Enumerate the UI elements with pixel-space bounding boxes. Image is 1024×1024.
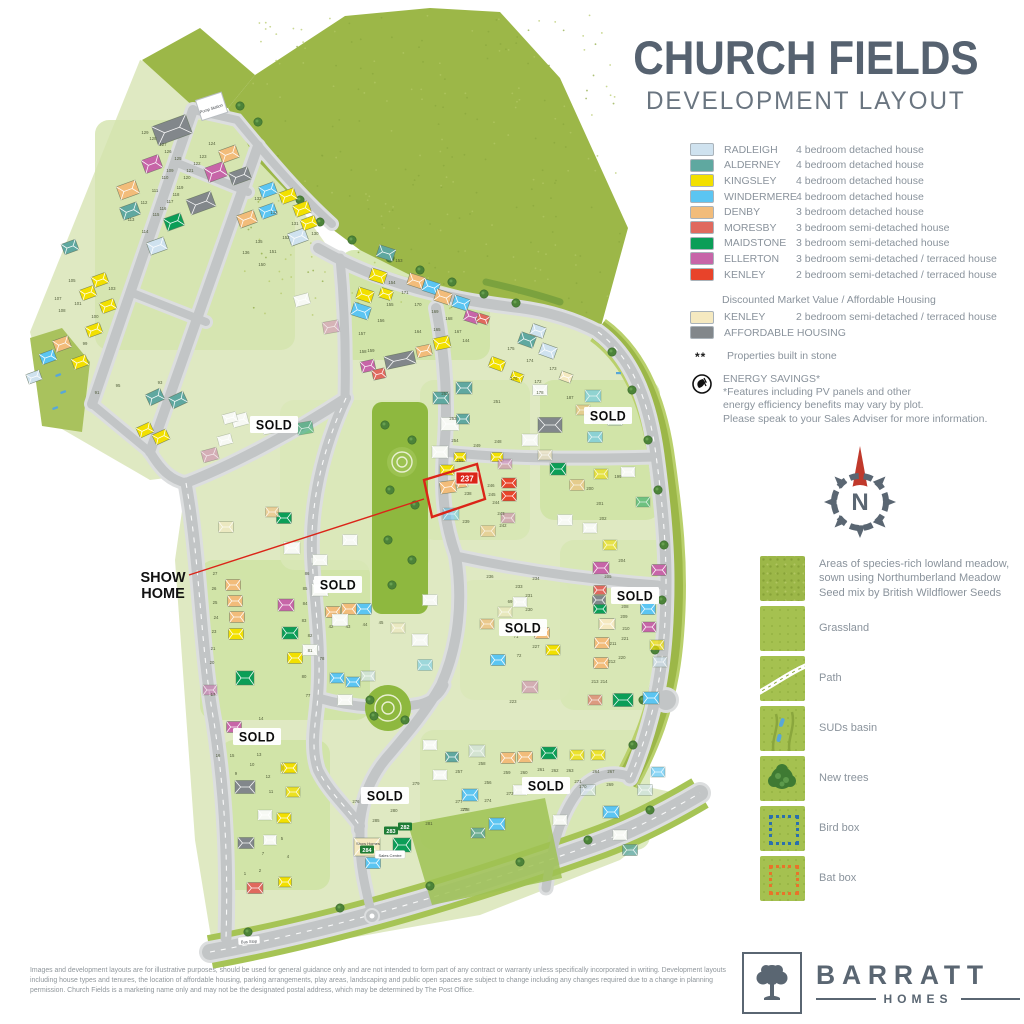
plot-number: 153	[395, 258, 403, 263]
plot-number: 245	[488, 492, 496, 497]
plot-number: 99	[83, 341, 88, 346]
plot-number: 173	[549, 366, 557, 371]
sold-label: SOLD	[314, 576, 362, 593]
plot-house	[588, 432, 603, 443]
legend-name: KINGSLEY	[724, 175, 796, 187]
plot-number: 82	[308, 633, 313, 638]
plot-house	[247, 883, 263, 894]
plot-number: 281	[425, 821, 433, 826]
plot-number: 169	[431, 309, 439, 314]
plot-number: 72	[517, 653, 522, 658]
plot-number: 159	[367, 348, 375, 353]
plot-number: 172	[534, 379, 542, 384]
plot-number: 10	[250, 762, 255, 767]
feature-label: SUDs basin	[819, 721, 877, 735]
energy-note-1: *Features including PV panels and other	[723, 386, 911, 398]
plot-number: 119	[177, 185, 184, 190]
grassland-swatch	[760, 606, 805, 651]
plot-house	[594, 469, 608, 479]
plot-house	[469, 745, 485, 757]
brand-name: BARRATT	[816, 960, 1016, 991]
plot-house	[258, 810, 272, 820]
title-block: CHURCH FIELDS DEVELOPMENT LAYOUT	[596, 30, 1016, 116]
plot-number: 69	[508, 599, 513, 604]
plot-number: 254	[451, 438, 459, 443]
suds-basin-swatch	[760, 706, 805, 751]
meadow-swatch	[760, 556, 805, 601]
plot-house	[621, 467, 635, 477]
plot-house	[418, 660, 433, 671]
plot-number: 279	[412, 781, 420, 786]
plot-house	[650, 640, 664, 650]
plot-number: 255	[456, 458, 464, 463]
plot-house	[446, 752, 459, 762]
plot-number: 220	[618, 655, 626, 660]
plot-number: 151	[269, 249, 277, 254]
plot-number: 27	[213, 571, 218, 576]
plot-number: 270	[579, 784, 587, 789]
legend-row: MORESBY3 bedroom semi-detached house	[690, 220, 1022, 236]
plot-number: 210	[622, 626, 630, 631]
radleigh-swatch	[690, 143, 714, 156]
feature-row: Bat box	[760, 856, 1022, 901]
plot-number: 11	[269, 789, 274, 794]
plot-house	[322, 320, 340, 335]
plot-number: 105	[68, 278, 76, 283]
plot-house	[502, 478, 517, 488]
plot-number: 278	[462, 807, 470, 812]
plot-number: 114	[142, 229, 149, 234]
svg-text:284: 284	[362, 848, 372, 854]
plot-house	[282, 627, 298, 639]
plot-house	[283, 763, 297, 773]
map-label: 282	[398, 823, 412, 832]
alderney-swatch	[690, 159, 714, 172]
bird-box-swatch	[760, 806, 805, 851]
svg-text:SOLD: SOLD	[590, 408, 626, 424]
legend-desc: 2 bedroom semi-detached / terraced house	[796, 311, 1022, 323]
plot-house	[491, 655, 506, 666]
feature-label: Bat box	[819, 871, 856, 885]
plot-house	[653, 657, 667, 667]
legend-desc: 4 bedroom detached house	[796, 159, 1022, 171]
plot-number: 178	[536, 390, 544, 395]
sold-label: SOLD	[584, 407, 632, 424]
plot-number: 274	[484, 798, 492, 803]
plot-number: 280	[390, 808, 398, 813]
plot-number: 24	[214, 615, 219, 620]
plot-number: 86	[305, 571, 310, 576]
denby-swatch	[690, 206, 714, 219]
map-features-legend: Areas of species-rich lowland meadow, so…	[760, 556, 1022, 906]
page: { "title": "CHURCH FIELDS", "subtitle": …	[0, 0, 1024, 1024]
plot-house	[593, 562, 609, 574]
site-map: 1291281271261251241231221211201091101111…	[0, 0, 740, 1024]
plot-number: 170	[414, 302, 422, 307]
plot-number: 101	[74, 301, 82, 306]
plot-number: 135	[255, 239, 263, 244]
plot-house	[570, 750, 584, 760]
plot-number: 252	[441, 391, 449, 396]
plot-number: 277	[455, 799, 463, 804]
plot-house	[286, 787, 300, 797]
legend-row: DENBY3 bedroom detached house	[690, 204, 1022, 220]
svg-text:SOLD: SOLD	[320, 577, 356, 593]
plot-number: 26	[212, 586, 217, 591]
plot-number: 130	[311, 231, 319, 236]
compass-needle	[852, 446, 868, 490]
svg-text:SOLD: SOLD	[505, 620, 541, 636]
plot-house	[538, 418, 562, 433]
compass-rose: N	[808, 438, 912, 553]
plot-house	[591, 750, 605, 760]
plot-house	[550, 463, 566, 475]
plot-number: 131	[291, 221, 299, 226]
maidstone-swatch	[690, 237, 714, 250]
map-label: Sales Centre	[375, 851, 405, 859]
plot-number: 144	[462, 338, 470, 343]
plot-number: 25	[213, 600, 218, 605]
plot-number: 23	[212, 629, 217, 634]
plot-house	[489, 818, 505, 830]
plot-number: 236	[486, 574, 494, 579]
plot-number: 95	[116, 383, 121, 388]
plot-number: 267	[607, 769, 615, 774]
plot-house	[238, 838, 254, 849]
plot-number: 85	[303, 586, 308, 591]
svg-text:SOLD: SOLD	[617, 588, 653, 604]
plot-number: 168	[445, 316, 453, 321]
plot-number: 175	[507, 346, 515, 351]
barratt-logo: BARRATT HOMES	[742, 952, 1020, 1014]
plot-number: 256	[484, 780, 492, 785]
house-type-legend: RADLEIGH4 bedroom detached house ALDERNE…	[690, 142, 1022, 426]
plot-house	[585, 390, 601, 402]
plot-house	[391, 623, 405, 633]
plot-number: 112	[141, 200, 148, 205]
energy-title: ENERGY SAVINGS*	[723, 373, 820, 385]
legend-name: WINDERMERE	[724, 191, 796, 203]
plot-number: 126	[164, 149, 172, 154]
plot-number: 122	[193, 161, 201, 166]
plot-number: 17	[211, 692, 216, 697]
plot-house	[230, 612, 245, 623]
plot-house	[613, 694, 633, 707]
plot-number: 109	[166, 168, 174, 173]
svg-text:SOLD: SOLD	[367, 788, 403, 804]
plot-house	[583, 523, 597, 533]
plot-house	[480, 619, 494, 629]
plot-number: 44	[363, 622, 368, 627]
plot-number: 14	[259, 716, 264, 721]
plot-number: 156	[377, 318, 385, 323]
plot-house	[457, 414, 470, 424]
plot-house	[439, 480, 457, 494]
plot-number: 200	[586, 486, 594, 491]
legend-desc: 4 bedroom detached house	[796, 144, 1022, 156]
plot-house	[313, 555, 328, 566]
plot-house	[593, 596, 606, 605]
plot-house	[393, 838, 411, 852]
plot-number: 103	[108, 286, 116, 291]
plot-house	[502, 491, 517, 501]
svg-text:SOLD: SOLD	[256, 417, 292, 433]
plot-house	[338, 695, 353, 706]
plot-number: 43	[346, 624, 351, 629]
plot-number: 259	[503, 770, 511, 775]
plot-number: 42	[329, 624, 334, 629]
plot-number: 261	[537, 767, 545, 772]
plot-house	[623, 845, 638, 856]
feature-row: New trees	[760, 756, 1022, 801]
plot-number: 227	[532, 644, 540, 649]
plot-number: 80	[302, 674, 307, 679]
sold-label: SOLD	[233, 728, 281, 745]
energy-savings-icon	[690, 373, 723, 398]
plot-number: 157	[358, 331, 366, 336]
plot-number: 78	[320, 656, 325, 661]
legend-name: AFFORDABLE HOUSING	[724, 327, 1022, 339]
windermere-swatch	[690, 190, 714, 203]
plot-number: 205	[604, 574, 612, 579]
legend-name: DENBY	[724, 206, 796, 218]
plot-number: 231	[525, 593, 533, 598]
plot-number: 243	[497, 511, 505, 516]
plot-number: 118	[173, 192, 180, 197]
plot-number: 209	[620, 614, 628, 619]
plot-house	[636, 497, 650, 507]
plot-house	[228, 596, 243, 607]
show-home-label: SHOW	[140, 570, 185, 586]
plot-number: 123	[199, 154, 207, 159]
plot-number: 199	[614, 474, 622, 479]
plot-house	[423, 740, 437, 750]
plot-house	[594, 605, 607, 614]
plot-number: 176	[510, 376, 518, 381]
plot-number: 263	[566, 768, 574, 773]
plot-house	[595, 638, 610, 649]
plot-number: 125	[174, 156, 182, 161]
plot-number: 239	[462, 519, 470, 524]
plot-number: 20	[210, 660, 215, 665]
plot-house	[481, 526, 496, 537]
sold-label: SOLD	[522, 777, 570, 794]
plot-number: 77	[306, 693, 311, 698]
plot-number: 242	[499, 523, 507, 528]
plot-number: 201	[596, 501, 604, 506]
plot-house	[643, 692, 659, 704]
plot-number: 108	[58, 308, 66, 313]
plot-house	[541, 747, 557, 759]
plot-number: 115	[153, 212, 160, 217]
plot-number: 264	[592, 769, 600, 774]
legend-row: KENLEY2 bedroom semi-detached / terraced…	[690, 267, 1022, 283]
plot-number: 238	[464, 491, 472, 496]
plot-house	[538, 450, 552, 460]
feature-label: New trees	[819, 771, 869, 785]
plot-number: 81	[308, 648, 313, 653]
plot-house	[638, 785, 653, 796]
energy-note-2: energy efficiency benefits may vary by p…	[723, 399, 924, 411]
plot-number: 165	[433, 327, 441, 332]
plot-number: 234	[532, 576, 540, 581]
legend-name: ELLERTON	[724, 253, 796, 265]
plot-number: 12	[266, 774, 271, 779]
plot-number: 158	[359, 349, 367, 354]
plot-house	[603, 540, 617, 550]
plot-number: 133	[254, 196, 262, 201]
legend-row: ALDERNEY4 bedroom detached house	[690, 158, 1022, 174]
legend-name: MORESBY	[724, 222, 796, 234]
legend-row: MAIDSTONE3 bedroom semi-detached house	[690, 236, 1022, 252]
plot-number: 213	[591, 679, 599, 684]
plot-number: 132	[270, 210, 278, 215]
plot-number: 164	[414, 329, 422, 334]
plot-number: 248	[494, 439, 502, 444]
plot-house	[357, 604, 372, 615]
plot-number: 110	[162, 175, 169, 180]
page-title: CHURCH FIELDS	[633, 30, 978, 85]
legend-name: ALDERNEY	[724, 159, 796, 171]
plot-number: 127	[159, 142, 167, 147]
feature-label: Grassland	[819, 621, 869, 635]
plot-number: 116	[160, 206, 167, 211]
plot-number: 208	[621, 604, 629, 609]
plot-number: 16	[216, 753, 221, 758]
legend-row: KENLEY2 bedroom semi-detached / terraced…	[690, 309, 1022, 325]
dmv-heading: Discounted Market Value / Affordable Hou…	[722, 294, 1022, 306]
kingsley-swatch	[690, 174, 714, 187]
plot-house	[346, 677, 360, 687]
feature-row: Grassland	[760, 606, 1022, 651]
legend-name: KENLEY	[724, 311, 796, 323]
plot-number: 258	[478, 761, 486, 766]
plot-number: 211	[610, 641, 617, 646]
plot-house	[456, 382, 472, 394]
plot-house	[518, 752, 533, 763]
plot-house	[361, 671, 375, 681]
svg-text:SOLD: SOLD	[239, 729, 275, 745]
page-subtitle: DEVELOPMENT LAYOUT	[646, 87, 966, 116]
legend-desc: 3 bedroom detached house	[796, 206, 1022, 218]
plot-house	[652, 565, 667, 576]
plot-house	[558, 515, 573, 526]
plot-house	[642, 622, 656, 632]
plot-number: 84	[303, 601, 308, 606]
feature-label: Bird box	[819, 821, 859, 835]
moresby-swatch	[690, 221, 714, 234]
legend-name: KENLEY	[724, 269, 796, 281]
energy-note-3: Please speak to your Sales Adviser for m…	[723, 413, 987, 425]
map-label: 284	[360, 846, 374, 855]
plot-number: 111	[152, 188, 159, 193]
plot-house	[236, 671, 254, 685]
plot-number: 93	[158, 380, 163, 385]
bat-box-swatch	[760, 856, 805, 901]
plot-number: 150	[258, 262, 266, 267]
plot-number: 120	[183, 175, 191, 180]
legend-row: WINDERMERE4 bedroom detached house	[690, 189, 1022, 205]
plot-number: 129	[141, 130, 149, 135]
plot-house	[471, 828, 485, 838]
plot-number: 257	[455, 769, 463, 774]
kenley-dmv-swatch	[690, 311, 714, 324]
legend-row: ELLERTON3 bedroom semi-detached / terrac…	[690, 251, 1022, 267]
plot-number: 15	[230, 753, 235, 758]
plot-number: 233	[515, 584, 523, 589]
plot-number: 260	[520, 770, 528, 775]
plot-house	[277, 813, 291, 823]
plot-house	[432, 446, 448, 458]
sold-label: SOLD	[250, 416, 298, 433]
plot-house	[498, 459, 512, 469]
plot-number: 204	[618, 558, 626, 563]
map-label: 283	[384, 827, 398, 836]
plot-number: 187	[566, 395, 574, 400]
plot-number: 249	[473, 443, 481, 448]
plot-number: 253	[449, 416, 457, 421]
svg-text:N: N	[851, 489, 868, 516]
plot-number: 262	[551, 768, 559, 773]
plot-237-tag: 237	[456, 472, 478, 484]
plot-number: 136	[242, 250, 250, 255]
plot-house	[641, 604, 656, 615]
svg-text:282: 282	[400, 825, 409, 831]
svg-text:Show Homes: Show Homes	[356, 841, 380, 846]
plot-house	[279, 877, 292, 887]
sold-label: SOLD	[361, 787, 409, 804]
plot-number: 152	[282, 235, 290, 240]
plot-house	[613, 830, 627, 840]
legend-desc: 4 bedroom detached house	[796, 191, 1022, 203]
plot-house	[651, 767, 665, 777]
legend-row: RADLEIGH4 bedroom detached house	[690, 142, 1022, 158]
plot-house	[330, 673, 344, 683]
plot-number: 223	[509, 699, 517, 704]
plot-number: 276	[352, 799, 360, 804]
new-trees-swatch	[760, 756, 805, 801]
plot-number: 273	[506, 791, 514, 796]
svg-text:283: 283	[386, 829, 395, 835]
plot-number: 128	[149, 136, 157, 141]
legend-name: MAIDSTONE	[724, 237, 796, 249]
svg-text:Sales Centre: Sales Centre	[378, 853, 402, 858]
plot-number: 171	[401, 290, 409, 295]
barratt-tree-icon	[742, 952, 802, 1014]
stone-note: Properties built in stone	[727, 350, 837, 362]
path-swatch	[760, 656, 805, 701]
map-label: Bus Stop	[238, 936, 260, 946]
ellerton-swatch	[690, 252, 714, 265]
legend-desc: 3 bedroom semi-detached / terraced house	[796, 253, 1022, 265]
legend-desc: 2 bedroom semi-detached / terraced house	[796, 269, 1022, 281]
plot-house	[594, 658, 609, 669]
plot-number: 174	[526, 358, 534, 363]
plot-house	[229, 629, 244, 640]
kenley-swatch	[690, 268, 714, 281]
legend-row: AFFORDABLE HOUSING	[690, 325, 1022, 341]
legend-desc: 4 bedroom detached house	[796, 175, 1022, 187]
plot-house	[501, 753, 516, 764]
plot-house	[546, 645, 560, 655]
plot-house	[296, 421, 314, 436]
plot-number: 155	[386, 302, 394, 307]
plot-number: 246	[487, 483, 495, 488]
plot-house	[522, 681, 538, 693]
plot-number: 45	[379, 620, 384, 625]
plot-house	[594, 586, 607, 595]
plot-number: 269	[606, 782, 614, 787]
